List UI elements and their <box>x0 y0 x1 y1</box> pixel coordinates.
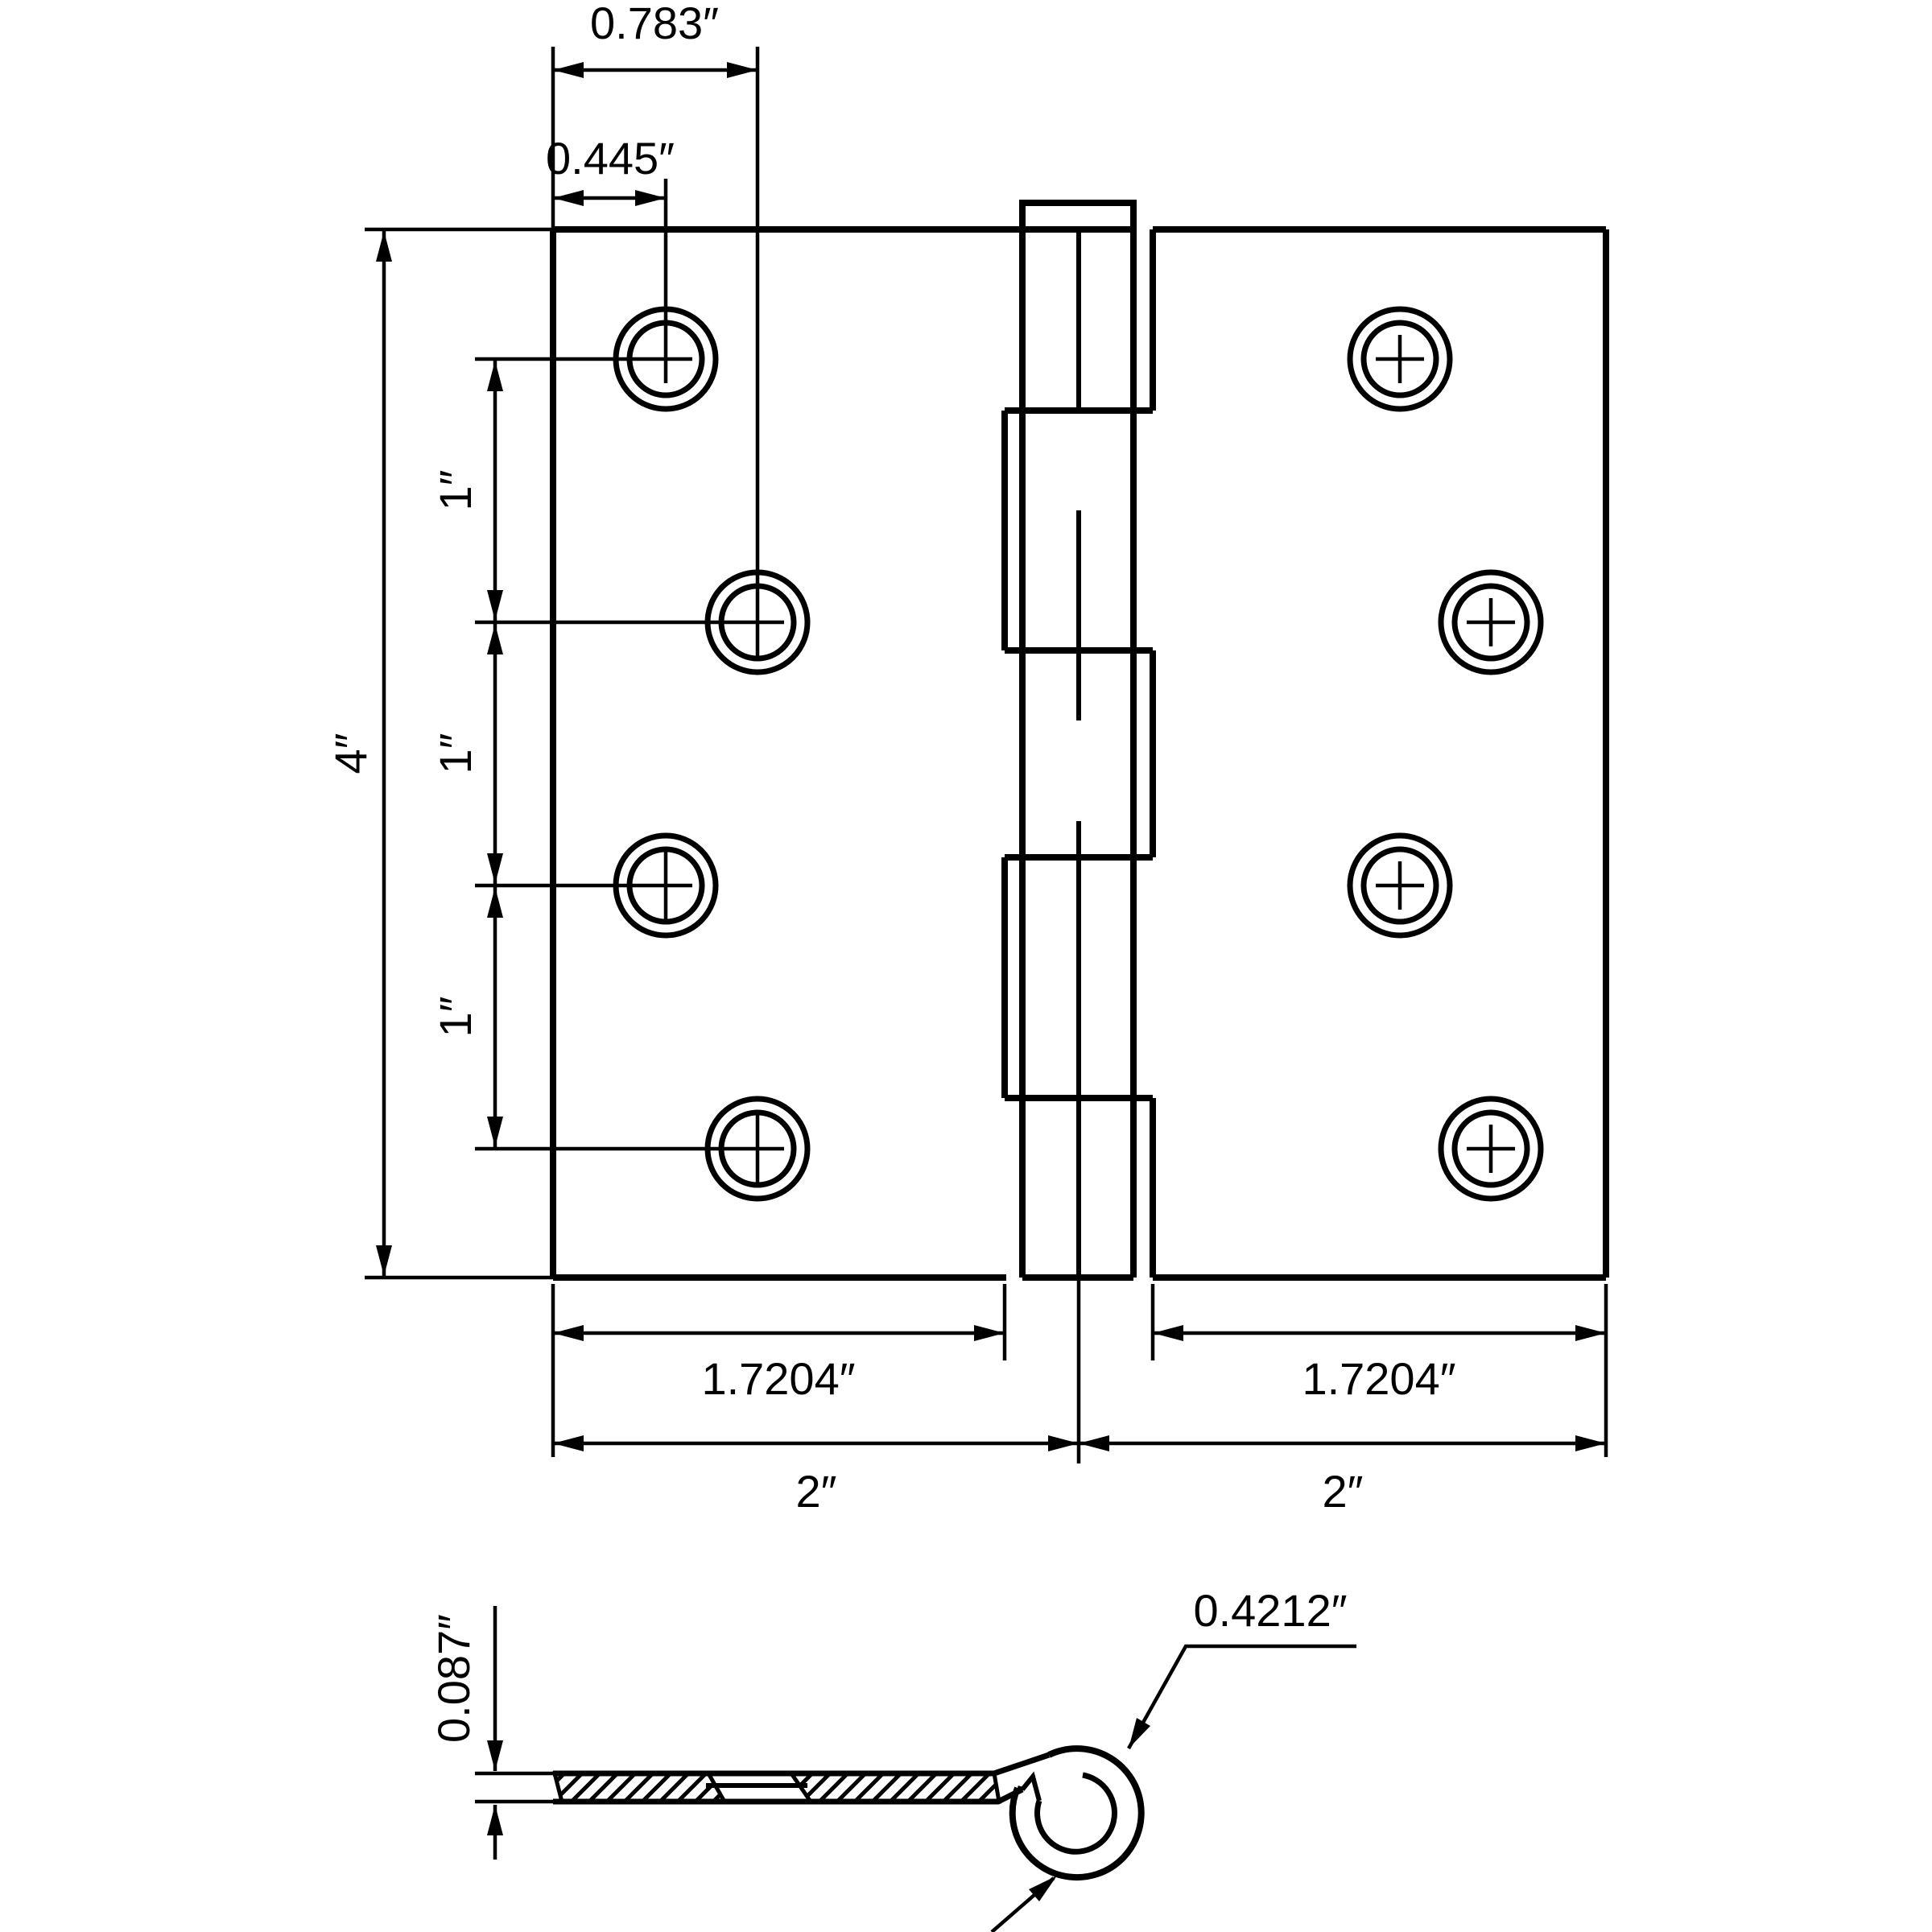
arrowhead-up <box>487 887 503 918</box>
leader-curl-diameter: 0.4212″ <box>1129 1585 1356 1748</box>
dim-label: 1.7204″ <box>1302 1353 1455 1404</box>
dim-label: 4″ <box>325 733 376 774</box>
dim-label: 2″ <box>796 1466 837 1517</box>
dimension-hole-spacing: 1″ 1″ 1″ <box>430 359 503 1149</box>
screw-hole <box>475 309 716 409</box>
arrowhead-right <box>1575 1435 1606 1451</box>
arrowhead-right <box>1575 1325 1606 1341</box>
hole-cross <box>1376 335 1424 383</box>
strip-top-edge <box>553 1755 1049 1773</box>
arrowhead-left <box>1153 1325 1183 1341</box>
screw-hole <box>475 1099 807 1199</box>
leaf-section-hatch-left <box>555 1773 724 1802</box>
dimension-top-inner: 0.445″ <box>546 133 675 383</box>
arrowhead-up <box>487 361 503 391</box>
screw-hole <box>475 836 716 935</box>
side-view: 0.087″ 0.4212″ <box>428 1585 1356 1932</box>
arrowhead-right <box>974 1325 1005 1341</box>
arrowhead-up <box>376 231 392 262</box>
arrowhead-down <box>487 590 503 621</box>
leaf-section-hatch-right <box>791 1773 999 1802</box>
front-view: 0.783″ 0.445″ 4″ 1″ 1″ <box>325 0 1606 1517</box>
hinge-technical-drawing: 0.783″ 0.445″ 4″ 1″ 1″ <box>0 0 1932 1932</box>
dimension-half-width-right: 2″ <box>1079 1435 1606 1517</box>
arrowhead-right <box>635 190 666 206</box>
arrowhead <box>1129 1718 1150 1748</box>
hole-cross <box>1467 1125 1515 1173</box>
arrowhead-right <box>1048 1435 1079 1451</box>
arrowhead-down <box>376 1245 392 1276</box>
dimension-half-width-left: 2″ <box>553 1435 1079 1517</box>
arrowhead-left <box>553 1435 584 1451</box>
screw-hole <box>1441 1099 1541 1199</box>
arrowhead-left <box>553 190 584 206</box>
dimension-leaf-width-right: 1.7204″ <box>1153 1325 1606 1404</box>
barrel-top-cap <box>1022 203 1133 229</box>
curl-inner-arc <box>1038 1775 1115 1851</box>
dim-label: 1″ <box>430 997 481 1038</box>
screw-hole <box>1441 572 1541 672</box>
dim-label: 1″ <box>430 733 481 774</box>
arrowhead-right <box>727 62 758 78</box>
dim-label: 0.087″ <box>428 1614 479 1743</box>
dimension-leaf-width-left: 1.7204″ <box>553 1325 1005 1404</box>
leader-line <box>1129 1646 1356 1748</box>
arrowhead-down <box>487 1740 503 1771</box>
screw-hole <box>1350 309 1450 409</box>
arrowhead-up <box>487 1805 503 1835</box>
dim-label: 1.7204″ <box>701 1353 855 1404</box>
dimension-top-outer: 0.783″ <box>553 0 758 656</box>
arrowhead-left <box>1079 1435 1109 1451</box>
arrowhead-left <box>553 62 584 78</box>
curl-outer-arc <box>1013 1748 1141 1877</box>
dim-label: 0.783″ <box>590 0 719 48</box>
hole-cross <box>1376 861 1424 910</box>
screw-hole <box>1350 836 1450 935</box>
dimension-thickness: 0.087″ <box>428 1606 503 1860</box>
dim-label: 0.445″ <box>546 133 675 184</box>
dim-label: 2″ <box>1323 1466 1364 1517</box>
arrowhead-up <box>487 624 503 654</box>
dim-label: 1″ <box>430 470 481 511</box>
curl-end-notch <box>1018 1777 1039 1801</box>
arrowhead-down <box>487 853 503 884</box>
dim-label: 0.4212″ <box>1193 1585 1347 1636</box>
arrowhead-left <box>553 1325 584 1341</box>
hole-cross <box>1467 598 1515 646</box>
leader-bottom <box>992 1876 1057 1932</box>
arrowhead-down <box>487 1117 503 1147</box>
